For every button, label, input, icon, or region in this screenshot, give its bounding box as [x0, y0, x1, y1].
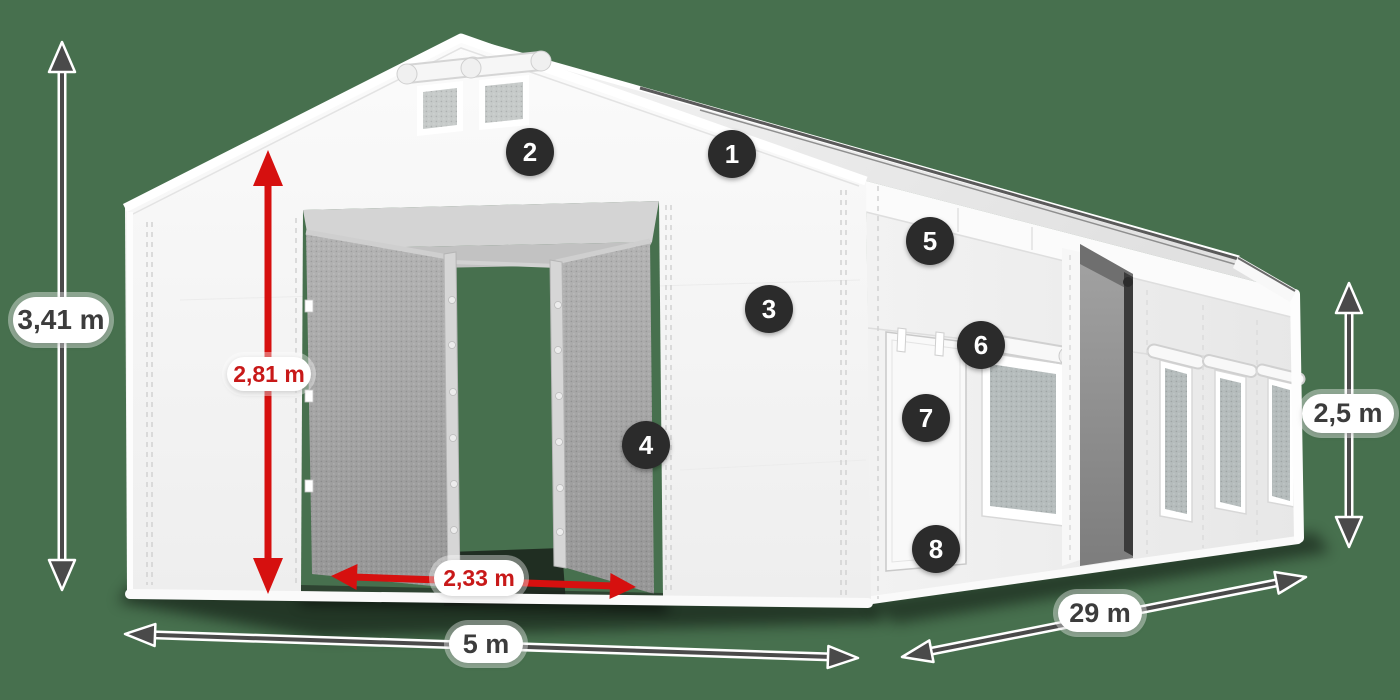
feature-badge-6[interactable]: 6: [957, 321, 1005, 369]
side-length-label: 29 m: [1058, 594, 1142, 632]
entrance-width-value: 2,33 m: [443, 565, 515, 592]
feature-badge-1[interactable]: 1: [708, 130, 756, 178]
feature-badge-2[interactable]: 2: [506, 128, 554, 176]
feature-badge-4[interactable]: 4: [622, 421, 670, 469]
side-length-value: 29 m: [1069, 598, 1131, 629]
feature-badge-5[interactable]: 5: [906, 217, 954, 265]
side-height-value: 2,5 m: [1313, 398, 1382, 429]
entrance-left-door: [305, 232, 460, 592]
entrance-height-label: 2,81 m: [227, 357, 311, 391]
side-doorway-opening: [1080, 244, 1133, 566]
side-height-label: 2,5 m: [1302, 394, 1394, 433]
total-height-label: 3,41 m: [13, 297, 109, 343]
feature-badge-3[interactable]: 3: [745, 285, 793, 333]
feature-badge-7[interactable]: 7: [902, 394, 950, 442]
tent-illustration: [0, 0, 1400, 700]
feature-badge-8[interactable]: 8: [912, 525, 960, 573]
front-width-label: 5 m: [449, 625, 523, 663]
entrance-right-door: [550, 240, 654, 594]
entrance-height-value: 2,81 m: [233, 361, 305, 388]
entrance: [301, 201, 663, 606]
tent-dimension-diagram: 3,41 m 2,81 m 2,33 m 5 m 29 m 2,5 m 1 2 …: [0, 0, 1400, 700]
total-height-value: 3,41 m: [17, 304, 104, 336]
entrance-width-label: 2,33 m: [434, 560, 524, 596]
front-width-value: 5 m: [463, 629, 510, 660]
